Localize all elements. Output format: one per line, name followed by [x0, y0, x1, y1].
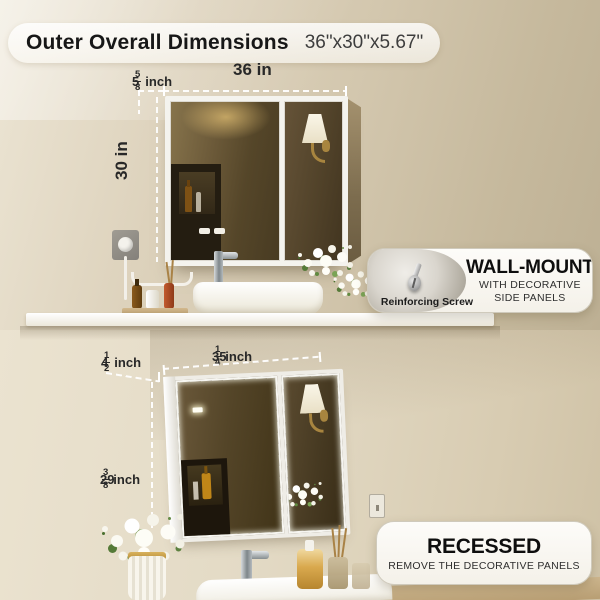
faucet [214, 251, 223, 285]
flower-reflection [298, 490, 307, 499]
overall-size-text: 36"x30"x5.67" [305, 32, 423, 54]
product-dimension-infographic: Outer Overall Dimensions 36"x30"x5.67" 3… [0, 0, 600, 600]
wallmount-depth-dimension-line [138, 90, 164, 92]
flower-bouquet [351, 279, 361, 289]
lamp-arm [311, 143, 325, 163]
flower-blooms [351, 279, 361, 289]
mirror-touch-buttons [199, 228, 225, 235]
wallmount-height-dimension-line [156, 97, 158, 262]
recessed-mirror-cabinet [163, 369, 350, 543]
wall-mount-subtitle-line1: WITH DECORATIVE [479, 279, 581, 292]
flower-blooms [298, 490, 307, 499]
shelf-shadow [20, 326, 500, 340]
lamp-arm [309, 413, 324, 434]
recessed-callout: RECESSED REMOVE THE DECORATIVE PANELS [376, 521, 592, 585]
wall-mount-callout: Reinforcing Screw WALL-MOUNT WITH DECORA… [367, 248, 593, 313]
wall-mount-callout-text: WALL-MOUNT WITH DECORATIVE SIDE PANELS [466, 249, 593, 312]
slim-bottle [193, 481, 199, 499]
towel-bar [131, 272, 193, 286]
vessel-sink [193, 282, 323, 315]
reed-diffuser [328, 557, 348, 589]
glass-jar [352, 563, 370, 589]
reinforcing-screw-photo: Reinforcing Screw [368, 249, 466, 312]
led-indicator [193, 407, 203, 412]
dimension-tick [345, 86, 347, 96]
recessed-depth-label: 4 12 inch [101, 351, 141, 373]
recessed-title: RECESSED [427, 533, 541, 560]
recessed-height-label: 29 38 inch [100, 468, 140, 490]
flower-blooms [320, 255, 332, 267]
flower-bouquet [135, 529, 153, 547]
floating-shelf [26, 313, 494, 326]
slim-bottle [196, 192, 201, 212]
red-diffuser-bottle [164, 283, 174, 309]
sconce-lamp-reflection [299, 114, 331, 174]
cabinet-left-mirror-door [175, 376, 284, 538]
flower-vase [128, 556, 166, 600]
amber-bottle [202, 473, 212, 499]
wallmount-depth-dimension-line [138, 90, 140, 114]
header-banner: Outer Overall Dimensions 36"x30"x5.67" [8, 23, 440, 63]
flower-bouquet [320, 255, 332, 267]
mirror-light-reflection [181, 101, 271, 140]
wallmount-depth-label: 5 58 inch [132, 70, 172, 92]
recessed-height-dimension-line [151, 382, 153, 530]
cabinet-side-panel [348, 99, 361, 264]
mirror-reflection-shelf [181, 458, 230, 538]
cabinet-right-mirror-door [284, 101, 343, 261]
wall-mount-title: WALL-MOUNT [466, 256, 593, 280]
power-cord [124, 256, 127, 300]
shelf-niche [179, 172, 215, 214]
cream-jar [146, 290, 159, 309]
shelf-niche [187, 464, 223, 506]
cabinet-right-mirror-door [281, 373, 346, 533]
light-switch [369, 494, 385, 518]
amber-bottle [132, 285, 142, 309]
wall-mount-subtitle-line2: SIDE PANELS [494, 292, 565, 305]
lamp-shade [302, 114, 328, 143]
page-title: Outer Overall Dimensions [26, 31, 289, 55]
sconce-lamp-reflection [296, 384, 331, 443]
flower-blooms [135, 529, 153, 547]
wallmount-width-dimension-line [163, 90, 347, 92]
mirror-reflection-shelf [171, 164, 221, 261]
amber-bottle [185, 186, 192, 212]
plug [118, 237, 133, 252]
dimension-tick [158, 372, 160, 382]
cabinet-left-mirror-door [170, 101, 280, 261]
recessed-subtitle: REMOVE THE DECORATIVE PANELS [388, 560, 580, 574]
soap-pump [305, 540, 314, 551]
soap-dispenser [297, 549, 323, 589]
